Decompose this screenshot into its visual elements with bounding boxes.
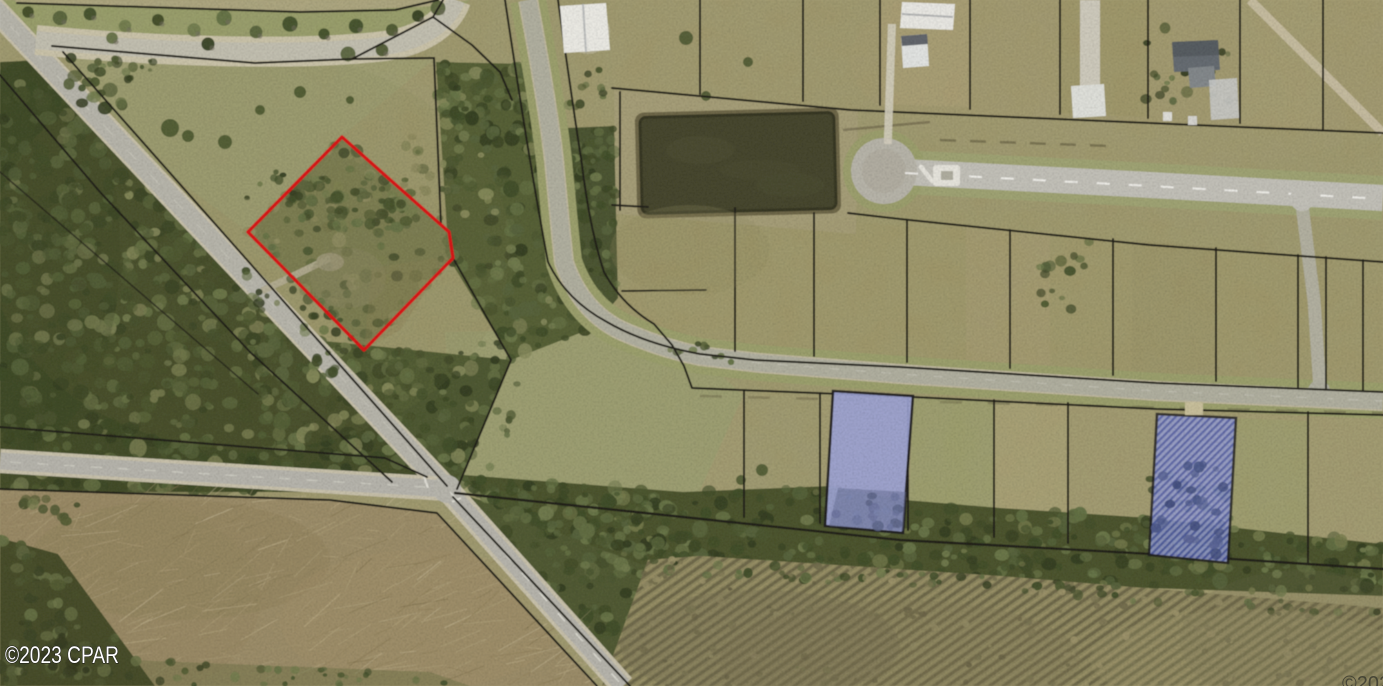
svg-text:©2023 CPAR: ©2023 CPAR — [5, 642, 119, 669]
svg-text:©2023: ©2023 — [1342, 673, 1383, 686]
